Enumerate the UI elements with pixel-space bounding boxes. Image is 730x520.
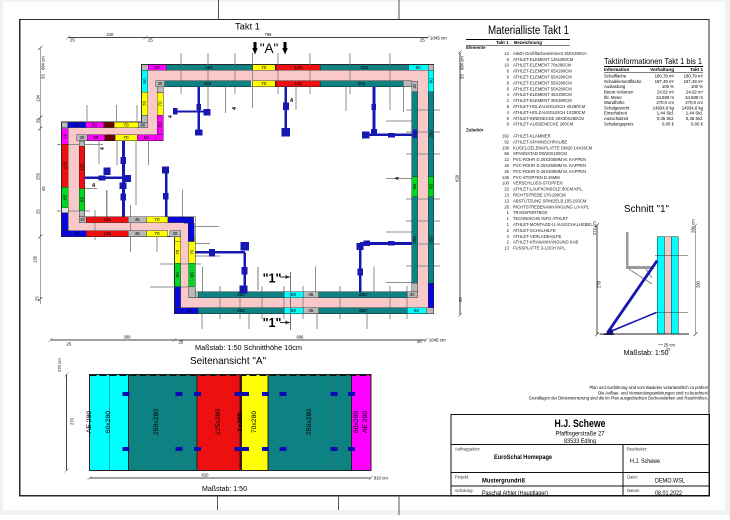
svg-text:60: 60 (416, 65, 422, 70)
svg-text:Maßstab: 1:50: Maßstab: 1:50 (202, 484, 247, 493)
svg-text:45: 45 (41, 186, 46, 191)
svg-text:ATHLET-MONTAGE-U.AUSSCHALHEBEL: ATHLET-MONTAGE-U.AUSSCHALHEBEL (513, 222, 593, 227)
svg-text:26: 26 (504, 169, 509, 174)
svg-text:70x280: 70x280 (251, 411, 258, 434)
svg-text:30: 30 (74, 122, 79, 127)
svg-text:210: 210 (107, 32, 115, 37)
svg-text:100 %: 100 % (691, 84, 703, 89)
svg-text:PVC-STOPFEN D.26MM: PVC-STOPFEN D.26MM (513, 175, 560, 180)
svg-text:Datei:: Datei: (627, 475, 638, 480)
svg-text:162: 162 (502, 134, 510, 139)
svg-text:Schalung:: Schalung: (455, 488, 474, 493)
svg-text:Auftraggeber:: Auftraggeber: (455, 447, 480, 452)
svg-text:lfd. Meter: lfd. Meter (604, 95, 622, 100)
svg-text:50: 50 (63, 133, 68, 139)
svg-text:70: 70 (261, 65, 267, 70)
svg-text:60: 60 (429, 78, 434, 84)
svg-text:ATHLET-ELEMENT 55X280CM: ATHLET-ELEMENT 55X280CM (513, 80, 572, 85)
svg-text:12: 12 (504, 157, 509, 162)
svg-text:ATHLET-LAUFKONSOLE 90CM KPL.: ATHLET-LAUFKONSOLE 90CM KPL. (513, 187, 583, 192)
svg-text:10: 10 (504, 63, 509, 68)
svg-text:ATHLET-KRANANHÄNGUNG KAB: ATHLET-KRANANHÄNGUNG KAB (513, 240, 579, 245)
svg-text:Ausschalzeit: Ausschalzeit (604, 116, 629, 121)
svg-text:125: 125 (294, 81, 302, 86)
svg-text:25: 25 (36, 209, 41, 214)
svg-text:Elemente: Elemente (466, 45, 486, 50)
svg-text:100: 100 (502, 181, 510, 186)
svg-text:ATHLET-INNENECKE 30X30X280CM: ATHLET-INNENECKE 30X30X280CM (513, 116, 584, 121)
svg-text:14934,6 kg: 14934,6 kg (682, 105, 704, 110)
svg-text:125: 125 (80, 163, 85, 171)
svg-text:250: 250 (360, 65, 368, 70)
svg-text:65: 65 (412, 184, 417, 190)
svg-text:125x280: 125x280 (215, 409, 222, 435)
svg-text:ATHLET-HOLZAUSGLEICH 4X280CM: ATHLET-HOLZAUSGLEICH 4X280CM (513, 104, 586, 109)
svg-text:Einschalzeit: Einschalzeit (604, 111, 628, 116)
svg-text:274 cm: 274 cm (592, 221, 597, 235)
svg-text:25: 25 (458, 297, 463, 302)
svg-text:24,02 m³: 24,02 m³ (657, 90, 675, 95)
svg-text:4: 4 (168, 115, 174, 118)
svg-text:Bezeichnung: Bezeichnung (514, 40, 542, 45)
svg-text:34,580 m: 34,580 m (685, 95, 703, 100)
svg-text:Seitenansicht "A": Seitenansicht "A" (190, 355, 266, 367)
svg-text:45: 45 (308, 308, 314, 313)
svg-text:134: 134 (36, 94, 41, 102)
svg-text:250: 250 (429, 130, 434, 138)
svg-text:ATHLET-SCHALHILFE: ATHLET-SCHALHILFE (513, 228, 556, 233)
svg-text:Mustergrundriß: Mustergrundriß (482, 478, 525, 485)
svg-text:60x280: 60x280 (105, 411, 112, 434)
svg-text:30: 30 (410, 292, 415, 297)
svg-text:KUGELGELENKPLATTE DW20 14X28CM: KUGELGELENKPLATTE DW20 14X28CM (513, 145, 593, 150)
svg-text:Plan und Ausführung sind vom B: Plan und Ausführung sind vom Bauleiter v… (589, 385, 708, 390)
svg-text:70: 70 (158, 101, 163, 107)
svg-text:22: 22 (504, 187, 509, 192)
svg-text:ATHLET-ELEMENT 125x280CM: ATHLET-ELEMENT 125x280CM (513, 57, 574, 62)
svg-text:13: 13 (504, 198, 509, 203)
svg-text:30: 30 (75, 231, 80, 236)
svg-text:Takt 1: Takt 1 (496, 40, 509, 45)
svg-text:187,49 m²: 187,49 m² (655, 79, 675, 84)
svg-text:1x280: 1x280 (237, 412, 244, 431)
svg-text:25: 25 (67, 341, 72, 346)
svg-text:Maßstab: 1:50 Schnitthöhe 10: Maßstab: 1:50 Schnitthöhe 10cm (195, 345, 302, 352)
svg-text:FUSSPLATTE 3-LOCH KPL.: FUSSPLATTE 3-LOCH KPL. (513, 246, 566, 251)
svg-text:H.J. Schewe: H.J. Schewe (630, 458, 660, 465)
svg-text:50: 50 (158, 122, 163, 128)
svg-text:12: 12 (504, 51, 509, 56)
svg-text:Schalungspreis: Schalungspreis (604, 121, 633, 126)
svg-text:250: 250 (205, 65, 213, 70)
svg-text:125: 125 (63, 161, 68, 169)
svg-text:125: 125 (294, 65, 302, 70)
svg-text:24,02 m³: 24,02 m³ (686, 90, 704, 95)
svg-text:Information: Information (604, 67, 629, 72)
svg-text:50: 50 (154, 65, 160, 70)
svg-text:Materialliste Takt 1: Materialliste Takt 1 (488, 25, 569, 37)
svg-text:65: 65 (80, 197, 85, 203)
svg-text:TRANSPORTBOX: TRANSPORTBOX (513, 210, 548, 215)
svg-text:65: 65 (175, 272, 180, 278)
svg-text:Schalfläche: Schalfläche (604, 74, 627, 79)
svg-text:255: 255 (36, 172, 41, 180)
svg-text:PVC-ROHR D.26X250MM M. KAPPEN: PVC-ROHR D.26X250MM M. KAPPEN (513, 163, 586, 168)
svg-text:30: 30 (79, 135, 84, 140)
svg-text:250: 250 (358, 81, 366, 86)
svg-text:"1": "1" (263, 316, 282, 330)
svg-text:66: 66 (504, 151, 509, 156)
svg-text:0,36 Std.: 0,36 Std. (657, 116, 674, 121)
svg-text:Schalgewicht: Schalgewicht (604, 105, 630, 110)
svg-text:"A": "A" (260, 41, 279, 56)
svg-text:Taktinformationen Takt 1 bis: Taktinformationen Takt 1 bis 1 (604, 57, 702, 66)
svg-text:25: 25 (36, 118, 41, 123)
svg-text:EuroSchal Homepage: EuroSchal Homepage (494, 454, 552, 461)
svg-text:684 cm: 684 cm (460, 56, 465, 70)
svg-text:250x280: 250x280 (306, 409, 313, 435)
svg-text:50: 50 (93, 135, 99, 140)
svg-text:Wandhöhe: Wandhöhe (604, 100, 625, 105)
svg-text:SPANNSTAB DW20X100CM: SPANNSTAB DW20X100CM (513, 151, 567, 156)
svg-text:"1": "1" (263, 271, 282, 285)
svg-text:280: 280 (696, 280, 701, 288)
svg-text:60: 60 (291, 308, 297, 313)
svg-text:684 cm: 684 cm (41, 56, 46, 70)
svg-text:Die Aufbau- und Verwendungsanl: Die Aufbau- und Verwendungsanleitungen s… (598, 390, 708, 395)
svg-text:ATHLET-ELEMENT 50X280CM: ATHLET-ELEMENT 50X280CM (513, 86, 572, 91)
svg-text:Pfaffingerstraße 27: Pfaffingerstraße 27 (556, 431, 605, 438)
svg-text:0,00 €: 0,00 € (691, 121, 704, 126)
svg-text:VERSCHLUSS-STOPFEN: VERSCHLUSS-STOPFEN (513, 181, 563, 186)
svg-text:13: 13 (504, 246, 509, 251)
svg-text:80: 80 (140, 122, 145, 127)
svg-text:H.J. Schewe: H.J. Schewe (555, 418, 606, 430)
svg-text:70: 70 (142, 101, 147, 107)
svg-text:70: 70 (154, 231, 160, 236)
svg-text:ATHLET-ELEMENT 70x280CM: ATHLET-ELEMENT 70x280CM (513, 63, 572, 68)
svg-text:ATHLET-VERLADEHILFE: ATHLET-VERLADEHILFE (513, 234, 562, 239)
svg-text:ATHLET-HOLZAUSGLEICH 1X280CM: ATHLET-HOLZAUSGLEICH 1X280CM (513, 110, 586, 115)
svg-text:25: 25 (148, 38, 153, 43)
svg-text:ATHLET-SPANNSCHRAUBE: ATHLET-SPANNSCHRAUBE (513, 139, 567, 144)
svg-text:ATHLET-ELEMENT 30X280CM: ATHLET-ELEMENT 30X280CM (513, 98, 572, 103)
svg-text:Paschal Athlet (Hauptlager): Paschal Athlet (Hauptlager) (482, 490, 548, 497)
svg-text:30: 30 (80, 217, 85, 222)
svg-text:50: 50 (92, 122, 98, 127)
svg-text:45: 45 (135, 217, 141, 222)
svg-text:50: 50 (144, 135, 150, 140)
svg-text:250: 250 (412, 236, 417, 244)
svg-text:250: 250 (429, 236, 434, 244)
svg-text:250: 250 (359, 308, 367, 313)
svg-text:30: 30 (158, 81, 163, 86)
svg-text:45: 45 (308, 292, 314, 297)
svg-text:136: 136 (502, 175, 510, 180)
svg-text:0,00 €: 0,00 € (662, 121, 675, 126)
svg-text:250: 250 (237, 308, 245, 313)
svg-text:Zubehör: Zubehör (466, 128, 484, 133)
svg-text:70: 70 (261, 81, 267, 86)
svg-text:278: 278 (597, 280, 602, 288)
svg-text:250: 250 (204, 81, 212, 86)
svg-text:65: 65 (429, 184, 434, 190)
svg-text:RICHTSTREBE 170-290CM: RICHTSTREBE 170-290CM (513, 193, 566, 198)
svg-text:60x280: 60x280 (353, 411, 360, 434)
svg-text:70: 70 (154, 217, 160, 222)
svg-text:26: 26 (504, 163, 509, 168)
svg-text:92: 92 (504, 139, 509, 144)
svg-text:AE 280: AE 280 (362, 411, 369, 434)
svg-text:ATHLET-ELEMENT 45X280CM: ATHLET-ELEMENT 45X280CM (513, 92, 572, 97)
svg-text:Takt 1: Takt 1 (690, 67, 703, 72)
svg-text:08.01.2022: 08.01.2022 (655, 490, 682, 497)
svg-text:PVC-ROHR D.26X200MM M. KAPPEN: PVC-ROHR D.26X200MM M. KAPPEN (513, 157, 586, 162)
svg-text:Schalelementfläche: Schalelementfläche (604, 79, 642, 84)
svg-text:4: 4 (100, 147, 106, 150)
svg-text:14934,6 kg: 14934,6 kg (653, 105, 675, 110)
svg-text:136: 136 (502, 145, 510, 150)
svg-text:70: 70 (123, 122, 129, 127)
svg-text:DEMO.WSL: DEMO.WSL (655, 478, 685, 485)
svg-text:30: 30 (173, 231, 178, 236)
svg-text:45: 45 (135, 231, 141, 236)
svg-text:125: 125 (103, 231, 111, 236)
svg-text:60: 60 (291, 292, 297, 297)
svg-text:33: 33 (41, 74, 46, 79)
svg-text:1,44 Std.: 1,44 Std. (657, 111, 674, 116)
svg-text:187,49 m²: 187,49 m² (684, 79, 704, 84)
svg-text:810 cm: 810 cm (374, 476, 388, 481)
svg-text:Projekt:: Projekt: (455, 475, 469, 480)
svg-text:300: 300 (124, 334, 132, 339)
svg-text:Takt 1: Takt 1 (235, 22, 260, 32)
svg-text:20: 20 (417, 339, 422, 344)
svg-text:25: 25 (179, 340, 184, 345)
svg-text:ATHLET-ELEMENT 65X280CM: ATHLET-ELEMENT 65X280CM (513, 69, 572, 74)
svg-text:180,79 m²: 180,79 m² (655, 74, 675, 79)
svg-text:RICHTSTREBENANHÄNGUNG L/A KPL: RICHTSTREBENANHÄNGUNG L/A KPL (513, 204, 590, 209)
svg-text:270: 270 (70, 417, 75, 425)
svg-text:ATHLET-AUSSENECKE 280CM: ATHLET-AUSSENECKE 280CM (513, 122, 574, 127)
svg-text:83533 Edling: 83533 Edling (564, 438, 596, 445)
svg-text:Maßstab: 1:50: Maßstab: 1:50 (624, 348, 669, 357)
svg-text:1045 cm: 1045 cm (429, 338, 446, 343)
svg-text:Vorhaltung: Vorhaltung (650, 67, 674, 72)
svg-text:Grundlagen der Dimensionierung: Grundlagen der Dimensionierung sind die … (529, 396, 708, 401)
svg-text:270,0 cm: 270,0 cm (656, 100, 674, 105)
svg-text:Bearbeiter:: Bearbeiter: (627, 447, 647, 452)
svg-text:60: 60 (142, 78, 147, 84)
svg-text:768: 768 (265, 32, 273, 37)
svg-text:250: 250 (359, 292, 367, 297)
svg-text:13: 13 (504, 193, 509, 198)
svg-text:ATHLET-KLAMMER: ATHLET-KLAMMER (513, 134, 551, 139)
svg-text:629: 629 (455, 174, 460, 182)
svg-text:AE 280: AE 280 (86, 411, 93, 434)
svg-text:Beton-Volumen: Beton-Volumen (604, 90, 634, 95)
svg-text:70: 70 (175, 249, 180, 255)
svg-text:810: 810 (202, 472, 210, 477)
svg-text:Auslastung: Auslastung (604, 84, 626, 89)
svg-text:1045 cm: 1045 cm (430, 35, 447, 40)
svg-text:PVC-ROHR D.26X300MM M. KAPPEN: PVC-ROHR D.26X300MM M. KAPPEN (513, 169, 586, 174)
svg-text:25: 25 (420, 38, 425, 43)
svg-text:65: 65 (190, 272, 195, 278)
svg-text:280 cm: 280 cm (690, 219, 695, 233)
svg-text:30: 30 (187, 308, 192, 313)
svg-text:70: 70 (123, 135, 129, 140)
svg-text:34,580 m: 34,580 m (656, 95, 674, 100)
svg-text:100 %: 100 % (662, 84, 674, 89)
svg-text:30: 30 (412, 83, 417, 88)
svg-text:Atleth-Großflächenelement 250X: Atleth-Großflächenelement 250X280cm (513, 51, 587, 56)
svg-text:270 cm: 270 cm (57, 358, 62, 372)
svg-text:125: 125 (103, 217, 111, 222)
svg-text:33: 33 (460, 74, 465, 79)
svg-text:666: 666 (297, 334, 305, 339)
svg-text:180,79 m²: 180,79 m² (684, 74, 704, 79)
svg-text:60: 60 (414, 308, 420, 313)
svg-text:Datum:: Datum: (627, 488, 641, 493)
svg-text:65: 65 (63, 194, 68, 200)
svg-text:TECHNISCHE INFO ATHLET: TECHNISCHE INFO ATHLET (513, 216, 569, 221)
svg-text:1,44 Std.: 1,44 Std. (686, 111, 703, 116)
svg-text:Schnitt "1": Schnitt "1" (624, 203, 669, 215)
svg-text:ABSTÜTZUNG SPINDELB.105-150CM: ABSTÜTZUNG SPINDELB.105-150CM (513, 198, 587, 203)
svg-text:250x280: 250x280 (153, 409, 160, 435)
svg-text:25: 25 (70, 38, 75, 43)
svg-text:ATHLET-ELEMENT 60X280CM: ATHLET-ELEMENT 60X280CM (513, 75, 572, 80)
svg-text:25: 25 (35, 296, 40, 301)
svg-text:26: 26 (504, 204, 509, 209)
svg-text:0,36 Std.: 0,36 Std. (686, 116, 703, 121)
svg-text:135: 135 (33, 255, 38, 263)
svg-text:70: 70 (190, 249, 195, 255)
svg-text:270,0 cm: 270,0 cm (685, 100, 703, 105)
